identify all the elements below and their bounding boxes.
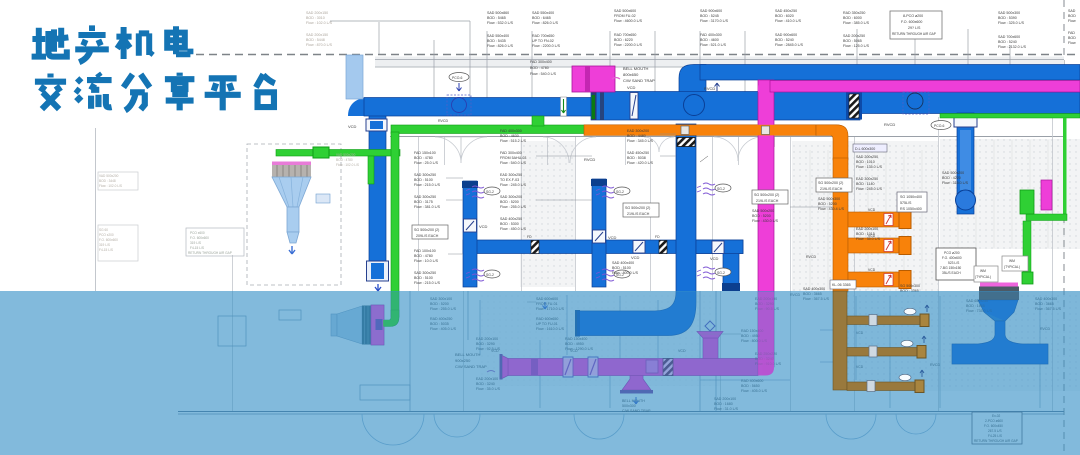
svg-text:SG 1050x400: SG 1050x400 (900, 195, 922, 199)
svg-text:BOD : 6220: BOD : 6220 (614, 38, 633, 42)
svg-text:EAD 300x250: EAD 300x250 (500, 173, 522, 177)
svg-text:319 L/S: 319 L/S (190, 241, 201, 245)
svg-text:7-BG 150x150: 7-BG 150x150 (940, 266, 961, 270)
svg-text:FAD 100x100: FAD 100x100 (414, 249, 436, 253)
svg-text:SAD 900x600: SAD 900x600 (700, 9, 722, 13)
svg-text:BOD : 5065: BOD : 5065 (843, 39, 862, 43)
svg-text:RAD 700x650: RAD 700x650 (614, 33, 636, 37)
svg-text:BOD : 5100: BOD : 5100 (414, 276, 433, 280)
svg-text:SAD 500x200: SAD 500x200 (752, 209, 774, 213)
svg-text:BOD : 5100: BOD : 5100 (612, 266, 631, 270)
svg-text:FROM FU-02: FROM FU-02 (614, 14, 636, 18)
svg-text:Flow : 2200.0 L/S: Flow : 2200.0 L/S (614, 43, 643, 47)
svg-text:BOD : 3175: BOD : 3175 (414, 200, 433, 204)
svg-text:BOD : 4780: BOD : 4780 (530, 66, 549, 70)
svg-text:BOD : 5465: BOD : 5465 (487, 16, 506, 20)
svg-text:BOD : 4780: BOD : 4780 (414, 156, 433, 160)
svg-text:SG-2: SG-2 (486, 190, 494, 194)
svg-text:Flow : 245.0 L/S: Flow : 245.0 L/S (856, 187, 883, 191)
svg-text:EAD 200x100: EAD 200x100 (856, 227, 878, 231)
svg-text:Flow : 255.0 L/S: Flow : 255.0 L/S (500, 205, 527, 209)
svg-text:KL-06 3365: KL-06 3365 (832, 283, 851, 287)
svg-text:RS 1050x400: RS 1050x400 (900, 207, 922, 211)
svg-text:BOD : 1140: BOD : 1140 (856, 182, 875, 186)
svg-text:Flow : 450.0 L/S: Flow : 450.0 L/S (500, 227, 527, 231)
svg-text:29? L/S: 29? L/S (908, 26, 921, 30)
svg-text:RVCD: RVCD (884, 122, 895, 127)
svg-text:Flow : 410.0 L/S: Flow : 410.0 L/S (775, 19, 802, 23)
svg-text:Flow : 515.2 L/S: Flow : 515.2 L/S (500, 139, 527, 143)
svg-text:VCD: VCD (479, 224, 488, 229)
svg-text:C/W SAND TRAP: C/W SAND TRAP (623, 78, 655, 83)
svg-text:SAD 500x200: SAD 500x200 (942, 171, 964, 175)
svg-text:Flow : 540.0 L/S: Flow : 540.0 L/S (530, 72, 557, 76)
svg-text:BOD : 5390: BOD : 5390 (998, 16, 1017, 20)
svg-text:BOD : 5100: BOD : 5100 (414, 178, 433, 182)
svg-text:Flow : 420.0 L/S: Flow : 420.0 L/S (627, 161, 654, 165)
svg-text:VCD: VCD (710, 256, 719, 261)
svg-text:FD: FD (527, 235, 532, 239)
svg-text:BOD : 5200: BOD : 5200 (752, 214, 771, 218)
svg-text:SG 500x200 (2): SG 500x200 (2) (625, 206, 650, 210)
svg-text:F4-15 L/S: F4-15 L/S (190, 246, 204, 250)
svg-text:UP TO FN-02: UP TO FN-02 (532, 39, 554, 43)
svg-text:219L/S EACH: 219L/S EACH (820, 187, 843, 191)
svg-text:Flow : 800.0 L/S: Flow : 800.0 L/S (612, 271, 639, 275)
svg-text:RAD 350x250: RAD 350x250 (843, 11, 865, 15)
svg-text:VCD: VCD (608, 235, 617, 240)
svg-text:BOD : 6465: BOD : 6465 (532, 16, 551, 20)
svg-text:VCD: VCD (868, 208, 876, 212)
svg-text:BOD : 5240: BOD : 5240 (998, 40, 1017, 44)
svg-text:BOD : 5200: BOD : 5200 (818, 202, 837, 206)
svg-text:WM: WM (980, 269, 986, 273)
svg-text:SAD 900x600: SAD 900x600 (775, 33, 797, 37)
svg-text:EAD 300x250: EAD 300x250 (856, 177, 878, 181)
svg-text:SAD 550x400: SAD 550x400 (487, 34, 509, 38)
svg-text:SAD 500x300: SAD 500x300 (998, 11, 1020, 15)
svg-text:FAD 300x400: FAD 300x400 (530, 60, 552, 64)
svg-text:SAD 550x400: SAD 550x400 (532, 11, 554, 15)
svg-text:SG 500x200 (2): SG 500x200 (2) (754, 193, 779, 197)
svg-text:SAD 200x150: SAD 200x150 (306, 33, 328, 37)
svg-text:SG 500x300: SG 500x300 (900, 284, 920, 288)
svg-text:SG 500x200 (2): SG 500x200 (2) (414, 228, 439, 232)
svg-text:SAD 400x250: SAD 400x250 (500, 217, 522, 221)
svg-text:SAD 200x250: SAD 200x250 (843, 34, 865, 38)
svg-text:D.L 600x300: D.L 600x300 (855, 147, 875, 151)
svg-text:Flow : 25.0 L/S: Flow : 25.0 L/S (414, 161, 439, 165)
svg-text:RAD 700x650: RAD 700x650 (532, 34, 554, 38)
svg-text:Flow : 102.0 L/S: Flow : 102.0 L/S (306, 21, 333, 25)
svg-text:FROM 5AHU-03: FROM 5AHU-03 (500, 156, 526, 160)
svg-text:VCD: VCD (348, 124, 357, 129)
svg-text:(TYPICAL): (TYPICAL) (1004, 265, 1020, 269)
svg-text:35L/S EACH: 35L/S EACH (942, 271, 961, 275)
svg-text:BELL MOUTH: BELL MOUTH (623, 66, 649, 71)
svg-text:PCO ø200: PCO ø200 (944, 251, 960, 255)
svg-text:BOD : 5300: BOD : 5300 (500, 222, 519, 226)
svg-text:BOD : 4600: BOD : 4600 (700, 38, 719, 42)
svg-text:VCD: VCD (868, 234, 876, 238)
svg-text:SAD 700x600: SAD 700x600 (998, 35, 1020, 39)
svg-text:BOD : 5245: BOD : 5245 (700, 14, 719, 18)
svg-text:Flow : 385.0 L/S: Flow : 385.0 L/S (843, 21, 870, 25)
svg-text:Flow : 521.0 L/S: Flow : 521.0 L/S (700, 43, 727, 47)
svg-text:VAD 500x200: VAD 500x200 (99, 174, 119, 178)
svg-text:Flow : 10.0 L/S: Flow : 10.0 L/S (414, 259, 439, 263)
svg-text:BOD : 4630: BOD : 4630 (500, 134, 519, 138)
svg-text:F4-15 L/S: F4-15 L/S (99, 248, 113, 252)
svg-text:SAD 300x250: SAD 300x250 (414, 195, 436, 199)
svg-text:Flow : 245.0 L/S: Flow : 245.0 L/S (500, 183, 527, 187)
svg-text:SAD 300x200: SAD 300x200 (500, 195, 522, 199)
svg-text:800x650: 800x650 (623, 72, 639, 77)
svg-text:Flow : 4600.0 L/S: Flow : 4600.0 L/S (614, 19, 643, 23)
svg-text:BOD: BOD (1068, 14, 1076, 18)
svg-text:SAD 300x250: SAD 300x250 (414, 173, 436, 177)
svg-text:RETURN THROUGH AIR GAP: RETURN THROUGH AIR GAP (892, 32, 936, 36)
svg-text:Flow : 315.0 L/S: Flow : 315.0 L/S (942, 181, 969, 185)
svg-text:SAD 450x250: SAD 450x250 (627, 151, 649, 155)
svg-text:Flow : 870.0 L/S: Flow : 870.0 L/S (306, 43, 333, 47)
svg-text:8-PCO ø200: 8-PCO ø200 (903, 14, 923, 18)
svg-text:BOD : 4220: BOD : 4220 (942, 176, 961, 180)
svg-text:RVCD: RVCD (704, 86, 715, 91)
svg-text:VCD: VCD (631, 255, 640, 260)
svg-text:Flow : 3170.0 L/S: Flow : 3170.0 L/S (700, 19, 729, 23)
svg-text:Flow : 135.0 L/S: Flow : 135.0 L/S (856, 165, 883, 169)
svg-text:BOD : 5038: BOD : 5038 (627, 156, 646, 160)
svg-text:Flow : 826.0 L/S: Flow : 826.0 L/S (532, 21, 559, 25)
svg-text:RVCD: RVCD (806, 255, 817, 259)
svg-text:Flow : 102.0 L/S: Flow : 102.0 L/S (336, 163, 359, 167)
svg-text:PCO x600: PCO x600 (190, 231, 205, 235)
svg-text:FAD 400x300: FAD 400x300 (500, 129, 522, 133)
svg-text:SAD 400x400: SAD 400x400 (612, 261, 634, 265)
svg-text:BOD : 5448: BOD : 5448 (306, 38, 325, 42)
svg-text:RVCD: RVCD (438, 119, 449, 123)
svg-text:FAD: FAD (1068, 31, 1075, 35)
svg-text:FD: FD (655, 235, 660, 239)
svg-text:Flow : 2845.0 L/S: Flow : 2845.0 L/S (775, 43, 804, 47)
svg-text:FAD 400x300: FAD 400x300 (700, 33, 722, 37)
svg-text:WM: WM (1009, 259, 1015, 263)
svg-text:VAD 500x200: VAD 500x200 (336, 153, 356, 157)
svg-text:Flow: Flow (1068, 19, 1076, 23)
svg-text:BOD : 4780: BOD : 4780 (414, 254, 433, 258)
svg-text:TO EX.F-03: TO EX.F-03 (500, 178, 519, 182)
svg-text:BOD : 4780: BOD : 4780 (336, 158, 353, 162)
svg-text:Flow : 532.0 L/S: Flow : 532.0 L/S (487, 21, 514, 25)
svg-text:VCD: VCD (627, 85, 636, 90)
svg-text:BOD : 3010: BOD : 3010 (306, 16, 325, 20)
svg-text:SG 500x200 (2): SG 500x200 (2) (818, 181, 843, 185)
svg-text:EAD 300x200: EAD 300x200 (627, 129, 649, 133)
svg-text:BOD : 6000: BOD : 6000 (843, 16, 862, 20)
svg-text:SAD 450x250: SAD 450x250 (775, 9, 797, 13)
svg-text:BOD : 5240: BOD : 5240 (775, 38, 794, 42)
svg-text:Flow : 125.0 L/S: Flow : 125.0 L/S (843, 44, 870, 48)
svg-text:Flow : 540.0 L/S: Flow : 540.0 L/S (500, 161, 527, 165)
svg-text:Flow : 381.0 L/S: Flow : 381.0 L/S (414, 205, 441, 209)
svg-text:RVCD: RVCD (584, 157, 595, 162)
svg-text:Flow: Flow (1068, 41, 1076, 45)
svg-text:SAD 500x860: SAD 500x860 (487, 11, 509, 15)
svg-text:BOD : 5435: BOD : 5435 (487, 39, 506, 43)
svg-text:319 L/S: 319 L/S (99, 243, 110, 247)
svg-text:FAD 300x400: FAD 300x400 (500, 151, 522, 155)
svg-text:Flow : 102.0 L/S: Flow : 102.0 L/S (99, 184, 122, 188)
svg-text:209L/S EACH: 209L/S EACH (416, 234, 439, 238)
svg-text:F.O. 600x600: F.O. 600x600 (901, 20, 922, 24)
svg-text:(TYPICAL): (TYPICAL) (975, 275, 991, 279)
svg-text:SAD 200x150: SAD 200x150 (306, 11, 328, 15)
svg-text:BOD : 4480: BOD : 4480 (627, 134, 646, 138)
svg-text:SAD 400x300: SAD 400x300 (803, 287, 825, 291)
svg-text:PCO-6: PCO-6 (934, 124, 944, 128)
svg-text:Flow : 2200.0 L/S: Flow : 2200.0 L/S (532, 44, 561, 48)
svg-text:RETURN THROUGH AIR GAP: RETURN THROUGH AIR GAP (188, 251, 232, 255)
svg-text:Flow : 325.0 L/S: Flow : 325.0 L/S (998, 21, 1025, 25)
svg-text:523 L/S: 523 L/S (948, 261, 960, 265)
svg-text:SAD 500x600: SAD 500x600 (614, 9, 636, 13)
svg-text:SAD: SAD (1068, 9, 1076, 13)
svg-text:Flow : 2132.0 L/S: Flow : 2132.0 L/S (998, 45, 1027, 49)
svg-text:219L/S EACH: 219L/S EACH (627, 212, 650, 216)
svg-text:SG 60: SG 60 (99, 228, 108, 232)
svg-text:SAD 200x250: SAD 200x250 (856, 155, 878, 159)
svg-text:F.O. 600x600: F.O. 600x600 (190, 236, 209, 240)
svg-text:BOD : 6020: BOD : 6020 (775, 14, 794, 18)
svg-text:Flow : 826.0 L/S: Flow : 826.0 L/S (487, 44, 514, 48)
svg-text:219L/S EACH: 219L/S EACH (756, 199, 779, 203)
svg-text:Flow : 215.0 L/S: Flow : 215.0 L/S (414, 281, 441, 285)
svg-text:Flow : 345.0 L/S: Flow : 345.0 L/S (627, 139, 654, 143)
svg-text:575L/S: 575L/S (900, 201, 912, 205)
svg-text:FAD 150x100: FAD 150x100 (414, 151, 436, 155)
svg-text:BOD: BOD (1068, 36, 1076, 40)
svg-text:SAD 300x250: SAD 300x250 (414, 271, 436, 275)
svg-text:BOD : 1010: BOD : 1010 (856, 160, 875, 164)
svg-text:PCO-6: PCO-6 (452, 76, 462, 80)
svg-text:F.O. 400x600: F.O. 400x600 (942, 256, 962, 260)
svg-text:Flow : 430.0 L/S: Flow : 430.0 L/S (752, 219, 779, 223)
svg-text:Flow : 430.4 L/S: Flow : 430.4 L/S (818, 207, 845, 211)
svg-text:BOD : 5200: BOD : 5200 (500, 200, 519, 204)
svg-text:SAD 500x300: SAD 500x300 (818, 197, 840, 201)
svg-text:F.O. 600x600: F.O. 600x600 (99, 238, 118, 242)
svg-text:Flow : 215.0 L/S: Flow : 215.0 L/S (414, 183, 441, 187)
svg-text:VCD: VCD (868, 268, 876, 272)
svg-text:BOD : 3448: BOD : 3448 (99, 179, 116, 183)
svg-text:PCO x200: PCO x200 (99, 233, 114, 237)
